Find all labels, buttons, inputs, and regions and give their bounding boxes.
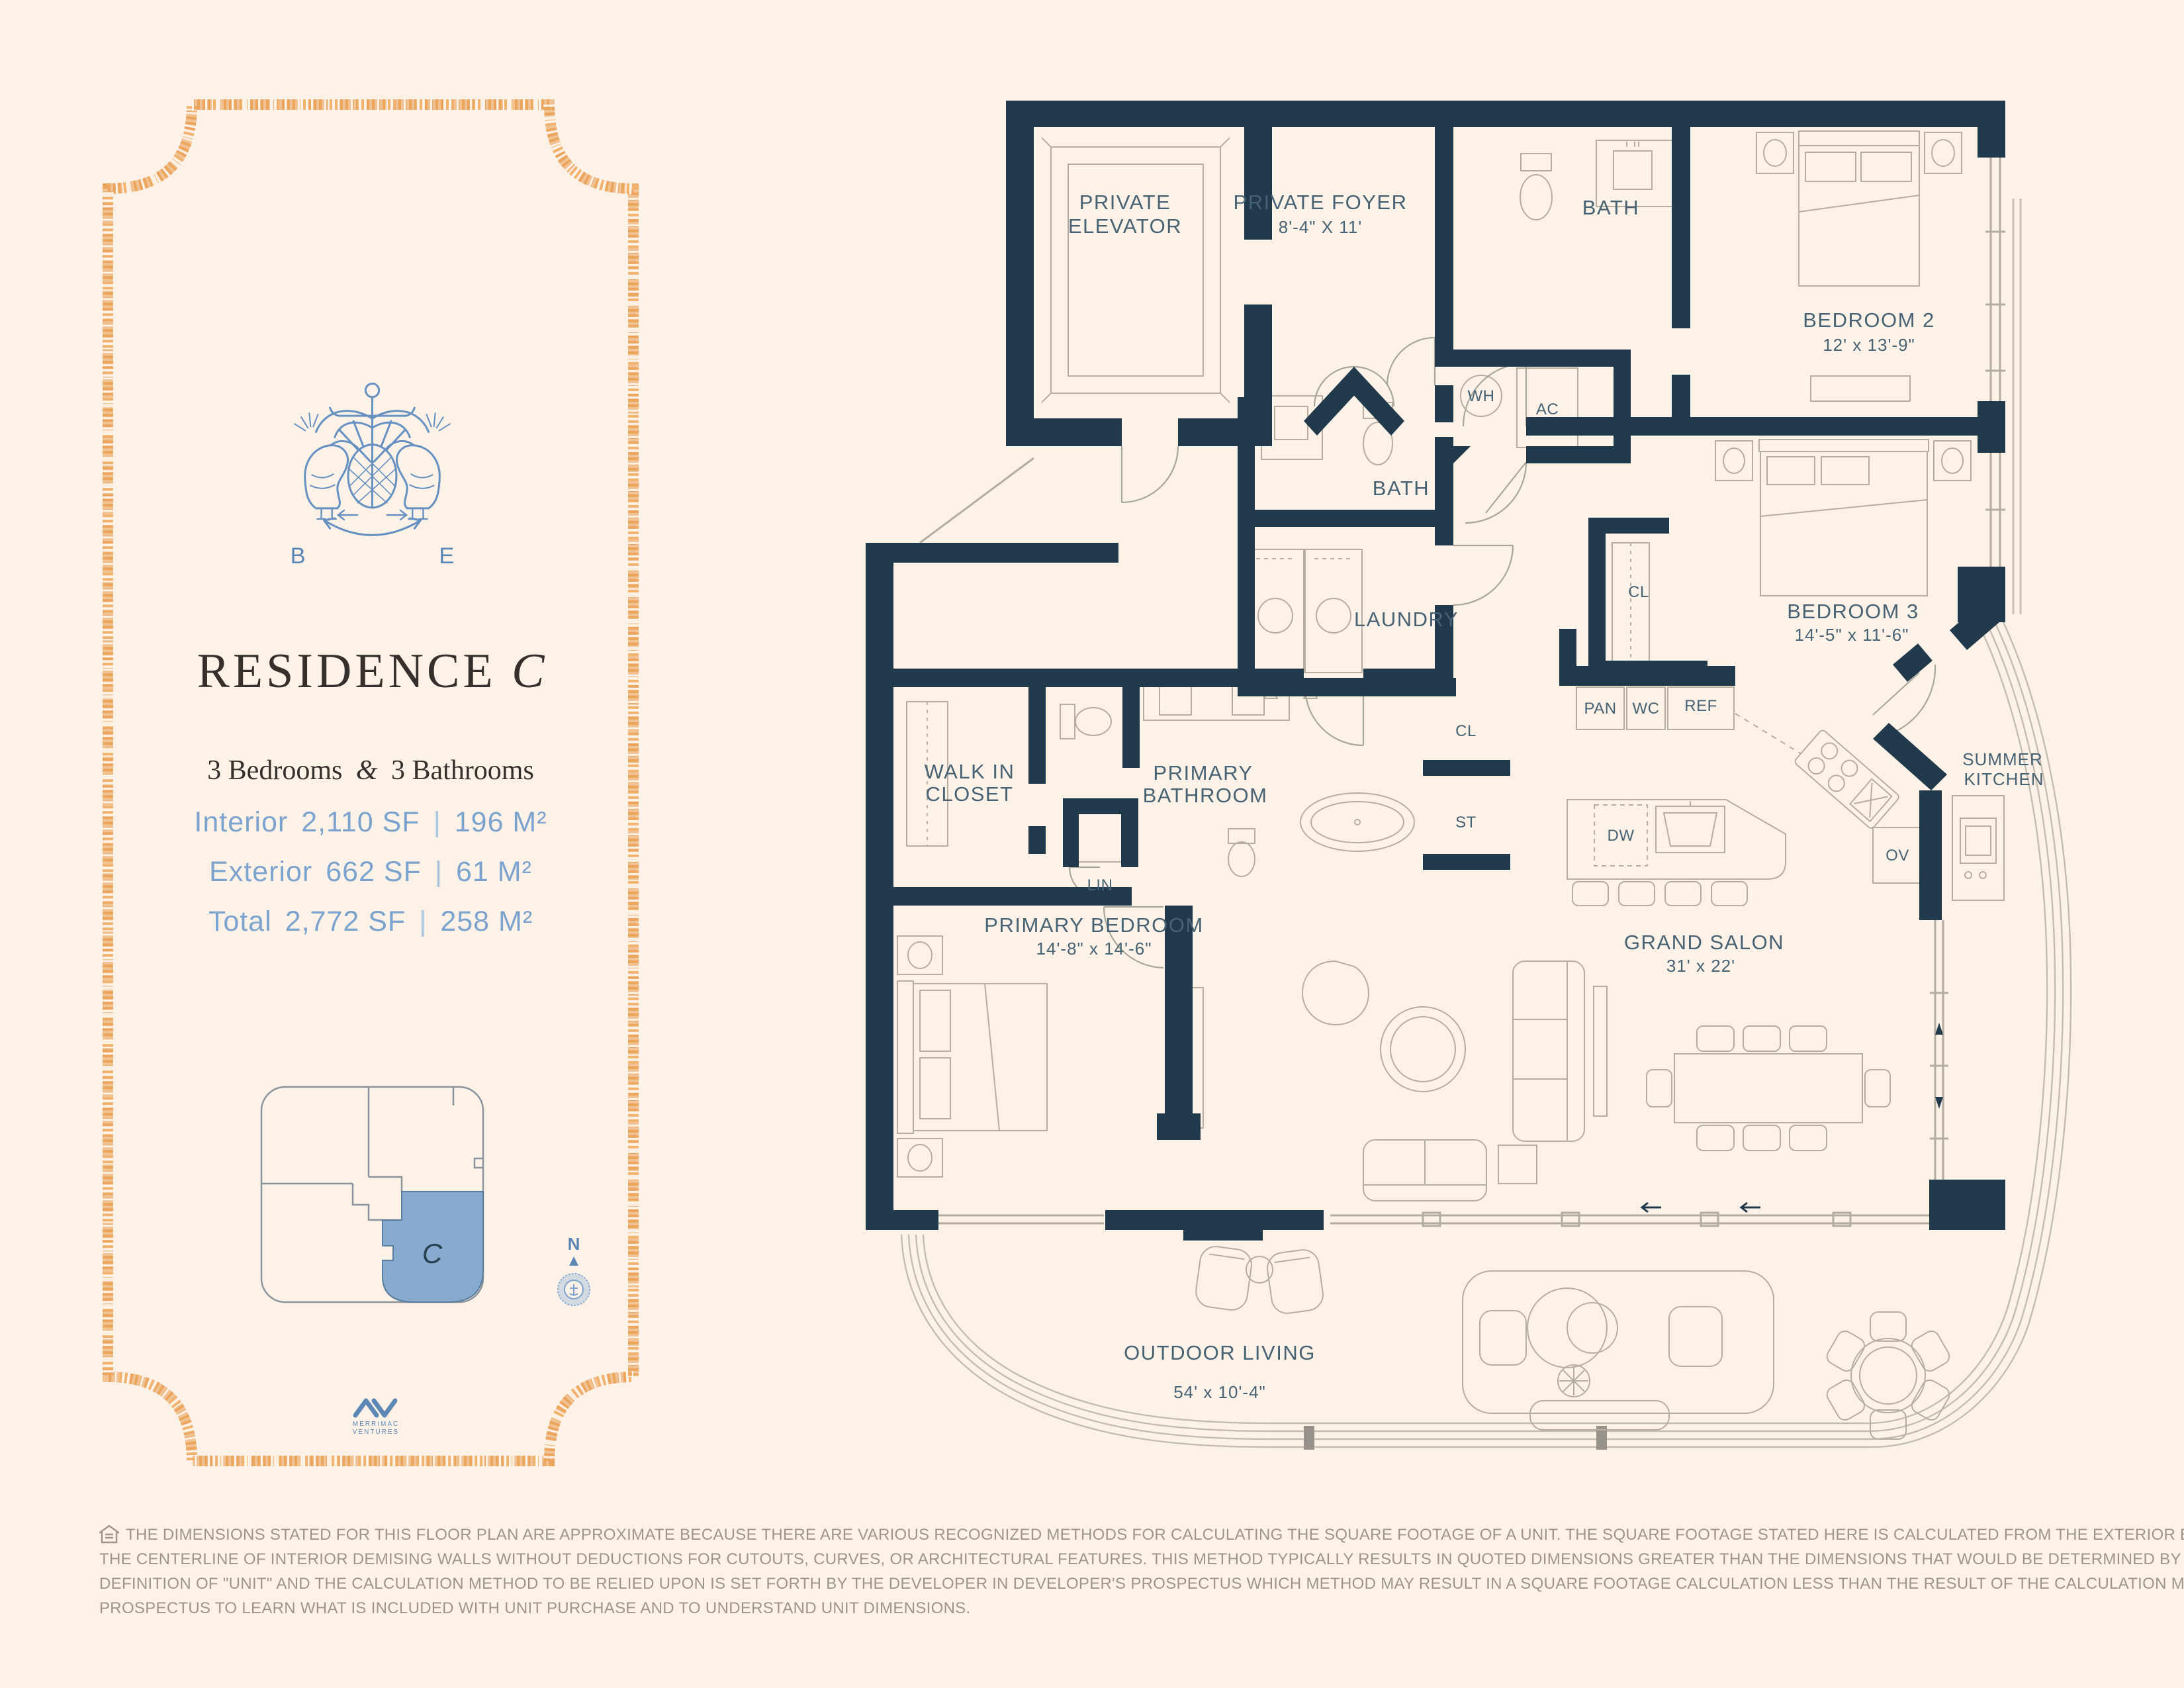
building-keyplan: C [255, 1079, 493, 1317]
stat-label: Interior [194, 806, 288, 839]
bed-bath-subtitle: 3 Bedrooms & 3 Bathrooms [103, 755, 639, 786]
elevator-cab [1042, 138, 1230, 402]
north-compass: N [554, 1233, 594, 1309]
brand-line1: MERRIMAC [353, 1421, 399, 1428]
label-private-elevator-2: ELEVATOR [1068, 214, 1182, 238]
stat-row-exterior: Exterior 662 SF | 61 M² [209, 856, 532, 888]
stat-m2: 196 M² [455, 806, 547, 839]
label-bedroom3: BEDROOM 3 [1787, 600, 1919, 623]
merrimac-ventures-logo: MERRIMAC VENTURES [346, 1395, 406, 1435]
label-laundry: LAUNDRY [1354, 608, 1459, 631]
floor-plan: PRIVATE ELEVATOR PRIVATE FOYER 8'-4" X 1… [841, 86, 2098, 1489]
label-primary-bathroom-2: BATHROOM [1143, 784, 1268, 807]
stat-m2: 258 M² [440, 906, 533, 938]
mv-chevron-icon [355, 1401, 395, 1415]
crest-letter-b: B [291, 543, 306, 569]
bedroom2-bed [1756, 131, 1962, 401]
walls [866, 101, 2005, 1241]
disclaimer-text-1: THE DIMENSIONS STATED FOR THIS FLOOR PLA… [126, 1526, 2184, 1544]
compass-rosette-icon [557, 1273, 590, 1306]
stat-row-interior: Interior 2,110 SF | 196 M² [194, 806, 547, 839]
stat-divider: | [433, 806, 441, 839]
label-walk-in-closet: WALK IN [925, 760, 1015, 783]
summer-kitchen-counter [1952, 796, 2004, 900]
disclaimer-line-1: THE DIMENSIONS STATED FOR THIS FLOOR PLA… [99, 1523, 2091, 1547]
label-ref: REF [1684, 697, 1717, 715]
stat-sf: 2,772 SF [285, 906, 406, 938]
disclaimer-line-2: THE CENTERLINE OF INTERIOR DEMISING WALL… [99, 1547, 2091, 1571]
label-wc: WC [1633, 700, 1660, 718]
label-primary-bathroom: PRIMARY [1153, 761, 1253, 784]
stat-m2: 61 M² [456, 856, 532, 888]
fire-pit [1558, 1365, 1590, 1397]
stat-label: Total [208, 906, 272, 938]
disclaimer: THE DIMENSIONS STATED FOR THIS FLOOR PLA… [99, 1523, 2091, 1620]
disclaimer-line-4: PROSPECTUS TO LEARN WHAT IS INCLUDED WIT… [99, 1596, 2091, 1620]
label-bedroom2-dims: 12' x 13'-9" [1823, 335, 1915, 355]
label-grand-salon-dims: 31' x 22' [1666, 956, 1735, 976]
label-st: ST [1455, 814, 1477, 831]
label-private-elevator: PRIVATE [1079, 191, 1171, 214]
outdoor-dining [1824, 1312, 1952, 1439]
primary-wc-toilet [1060, 704, 1111, 739]
keyplan-unit-letter: C [422, 1238, 443, 1269]
label-cl-bedroom3: CL [1628, 583, 1649, 601]
label-ov: OV [1886, 847, 1909, 865]
label-outdoor-living: OUTDOOR LIVING [1124, 1341, 1316, 1364]
stat-divider: | [435, 856, 443, 888]
label-private-foyer-dims: 8'-4" X 11' [1279, 217, 1363, 237]
info-panel: B E RESIDENCE C 3 Bedrooms & 3 Bathrooms… [103, 99, 639, 1466]
subtitle-bathrooms: 3 Bathrooms [391, 755, 534, 786]
label-bath-middle: BATH [1373, 477, 1430, 500]
salon-furniture [1302, 961, 1607, 1201]
brand-line2: VENTURES [353, 1429, 399, 1435]
label-bath-upper: BATH [1582, 196, 1639, 219]
label-primary-bedroom: PRIMARY BEDROOM [984, 914, 1203, 937]
label-grand-salon: GRAND SALON [1624, 931, 1784, 954]
linen-shelves [1073, 812, 1126, 862]
disclaimer-line-3: DEFINITION OF "UNIT" AND THE CALCULATION… [99, 1571, 2091, 1596]
label-dw: DW [1608, 827, 1635, 845]
area-stats: Interior 2,110 SF | 196 M² Exterior 662 … [103, 806, 639, 938]
subtitle-bedrooms: 3 Bedrooms [207, 755, 342, 786]
stat-divider: | [419, 906, 427, 938]
stat-sf: 2,110 SF [301, 806, 420, 839]
subtitle-ampersand: & [349, 755, 385, 786]
label-bedroom3-dims: 14'-5" x 11'-6" [1795, 625, 1909, 645]
stat-label: Exterior [209, 856, 312, 888]
primary-bed [897, 936, 1203, 1177]
label-summer-kitchen: SUMMER [1962, 749, 2043, 769]
label-bedroom2: BEDROOM 2 [1803, 308, 1935, 332]
stat-sf: 662 SF [326, 856, 422, 888]
floorplan-brochure-page: B E RESIDENCE C 3 Bedrooms & 3 Bathrooms… [0, 0, 2184, 1688]
bedroom3-closet [1612, 543, 1649, 662]
north-arrow-icon [569, 1256, 578, 1266]
equal-housing-icon [99, 1525, 119, 1544]
label-walk-in-closet-2: CLOSET [925, 782, 1013, 806]
north-label: N [568, 1234, 580, 1254]
residence-unit-letter: C [512, 644, 544, 698]
stat-row-total: Total 2,772 SF | 258 M² [208, 906, 533, 938]
kitchen-island [1567, 800, 1786, 906]
dining-set [1647, 1026, 1890, 1150]
label-summer-kitchen-2: KITCHEN [1964, 769, 2044, 789]
pelican-right [375, 441, 440, 519]
label-cl-hall: CL [1455, 722, 1477, 740]
label-lin: LIN [1087, 876, 1113, 894]
pelican-crest-logo: B E [238, 374, 506, 602]
residence-title-word: RESIDENCE [197, 644, 496, 698]
label-wh: WH [1468, 387, 1495, 405]
label-ac: AC [1536, 400, 1559, 418]
crest-letter-e: E [439, 543, 454, 569]
residence-title: RESIDENCE C [103, 643, 639, 700]
label-private-foyer: PRIVATE FOYER [1234, 191, 1408, 214]
label-outdoor-living-dims: 54' x 10'-4" [1173, 1382, 1266, 1402]
bedroom3-bed [1715, 440, 1971, 596]
pelican-left [305, 441, 371, 519]
label-primary-bedroom-dims: 14'-8" x 14'-6" [1036, 939, 1152, 959]
label-pan: PAN [1584, 700, 1616, 718]
